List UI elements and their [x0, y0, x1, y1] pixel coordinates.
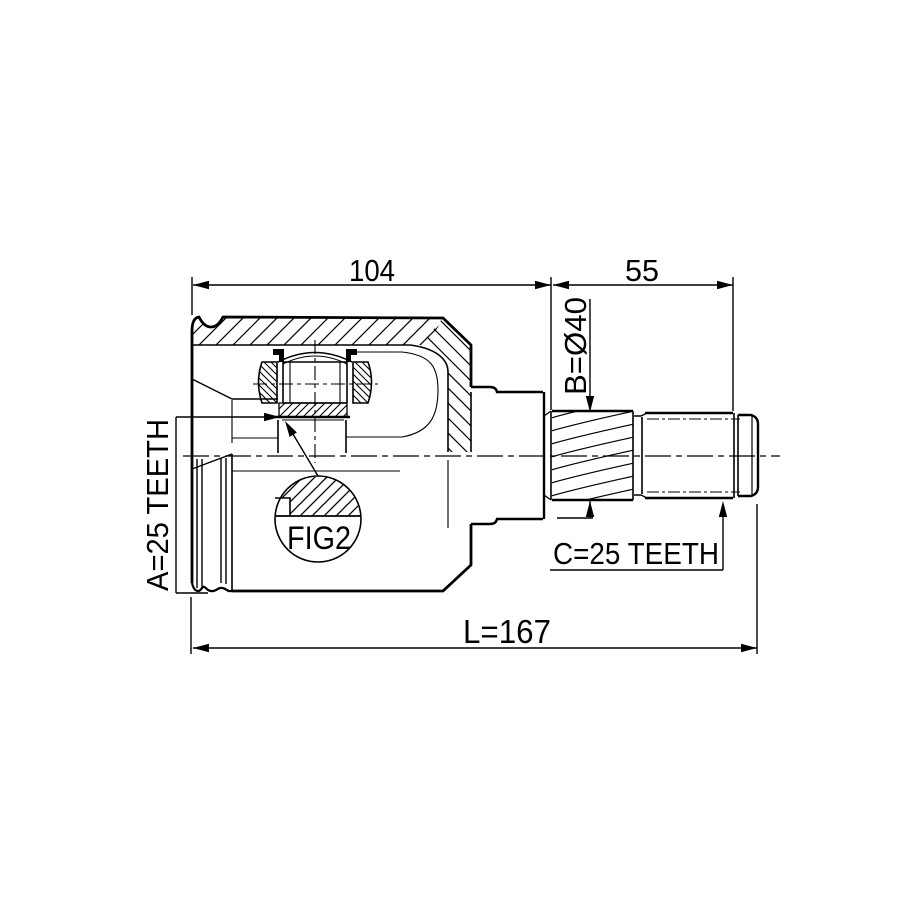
hub-step-bottom: [471, 519, 543, 524]
dim-a-arrow: [264, 413, 280, 421]
boot-groove-wave-bottom: [192, 583, 232, 591]
roller-left-hatch: [259, 362, 278, 403]
dim-b-arrow-top: [586, 396, 594, 412]
dimension-c-spline: C=25 TEETH: [550, 501, 727, 571]
dim-55-arrow-right: [717, 281, 733, 289]
housing-outline-bottom: [232, 524, 471, 591]
dim-l-arrow-left: [193, 644, 209, 652]
dim-b-arrow-bottom: [586, 501, 594, 517]
dim-b-text: B=Ø40: [558, 297, 593, 395]
dim-104-arrow-left: [193, 281, 209, 289]
dim-c-arrow: [719, 501, 727, 517]
dim-104-text: 104: [349, 253, 395, 288]
snap-ring-hook-right: [346, 349, 357, 362]
boot-groove-lines: [197, 458, 226, 589]
housing-top-wall-hatch: [192, 317, 443, 345]
cv-joint-technical-drawing: FIG2 104 55 B=Ø40 A=25 TEETH: [0, 0, 915, 915]
dim-c-text: C=25 TEETH: [553, 536, 719, 571]
spline-helix-lines: [551, 398, 634, 509]
dim-104-arrow-right: [535, 281, 551, 289]
dim-l-arrow-right: [741, 644, 757, 652]
dim-55-arrow-left: [553, 281, 569, 289]
roller-right-hatch: [353, 362, 372, 403]
dim-l-text: L=167: [463, 613, 551, 650]
fig2-leader-arrow: [281, 419, 296, 437]
trunnion-hatch-block: [279, 403, 347, 417]
dim-a-lines: [176, 417, 272, 593]
fig2-detail: FIG2: [272, 419, 366, 562]
dim-55-text: 55: [625, 253, 659, 288]
mouth-bore-lines: [232, 400, 278, 443]
dimension-a-spline: A=25 TEETH: [140, 413, 280, 593]
hub-step-top: [471, 387, 543, 392]
dimension-b-diameter: B=Ø40: [557, 297, 594, 518]
drawing-canvas: FIG2 104 55 B=Ø40 A=25 TEETH: [0, 0, 915, 915]
fig2-hatch-block: [272, 477, 366, 516]
fig2-label: FIG2: [287, 520, 351, 556]
dimensions: 104 55 B=Ø40 A=25 TEETH C=25 TEETH: [140, 253, 757, 654]
dim-a-text: A=25 TEETH: [140, 419, 175, 591]
snap-ring-hook-left: [273, 349, 284, 362]
